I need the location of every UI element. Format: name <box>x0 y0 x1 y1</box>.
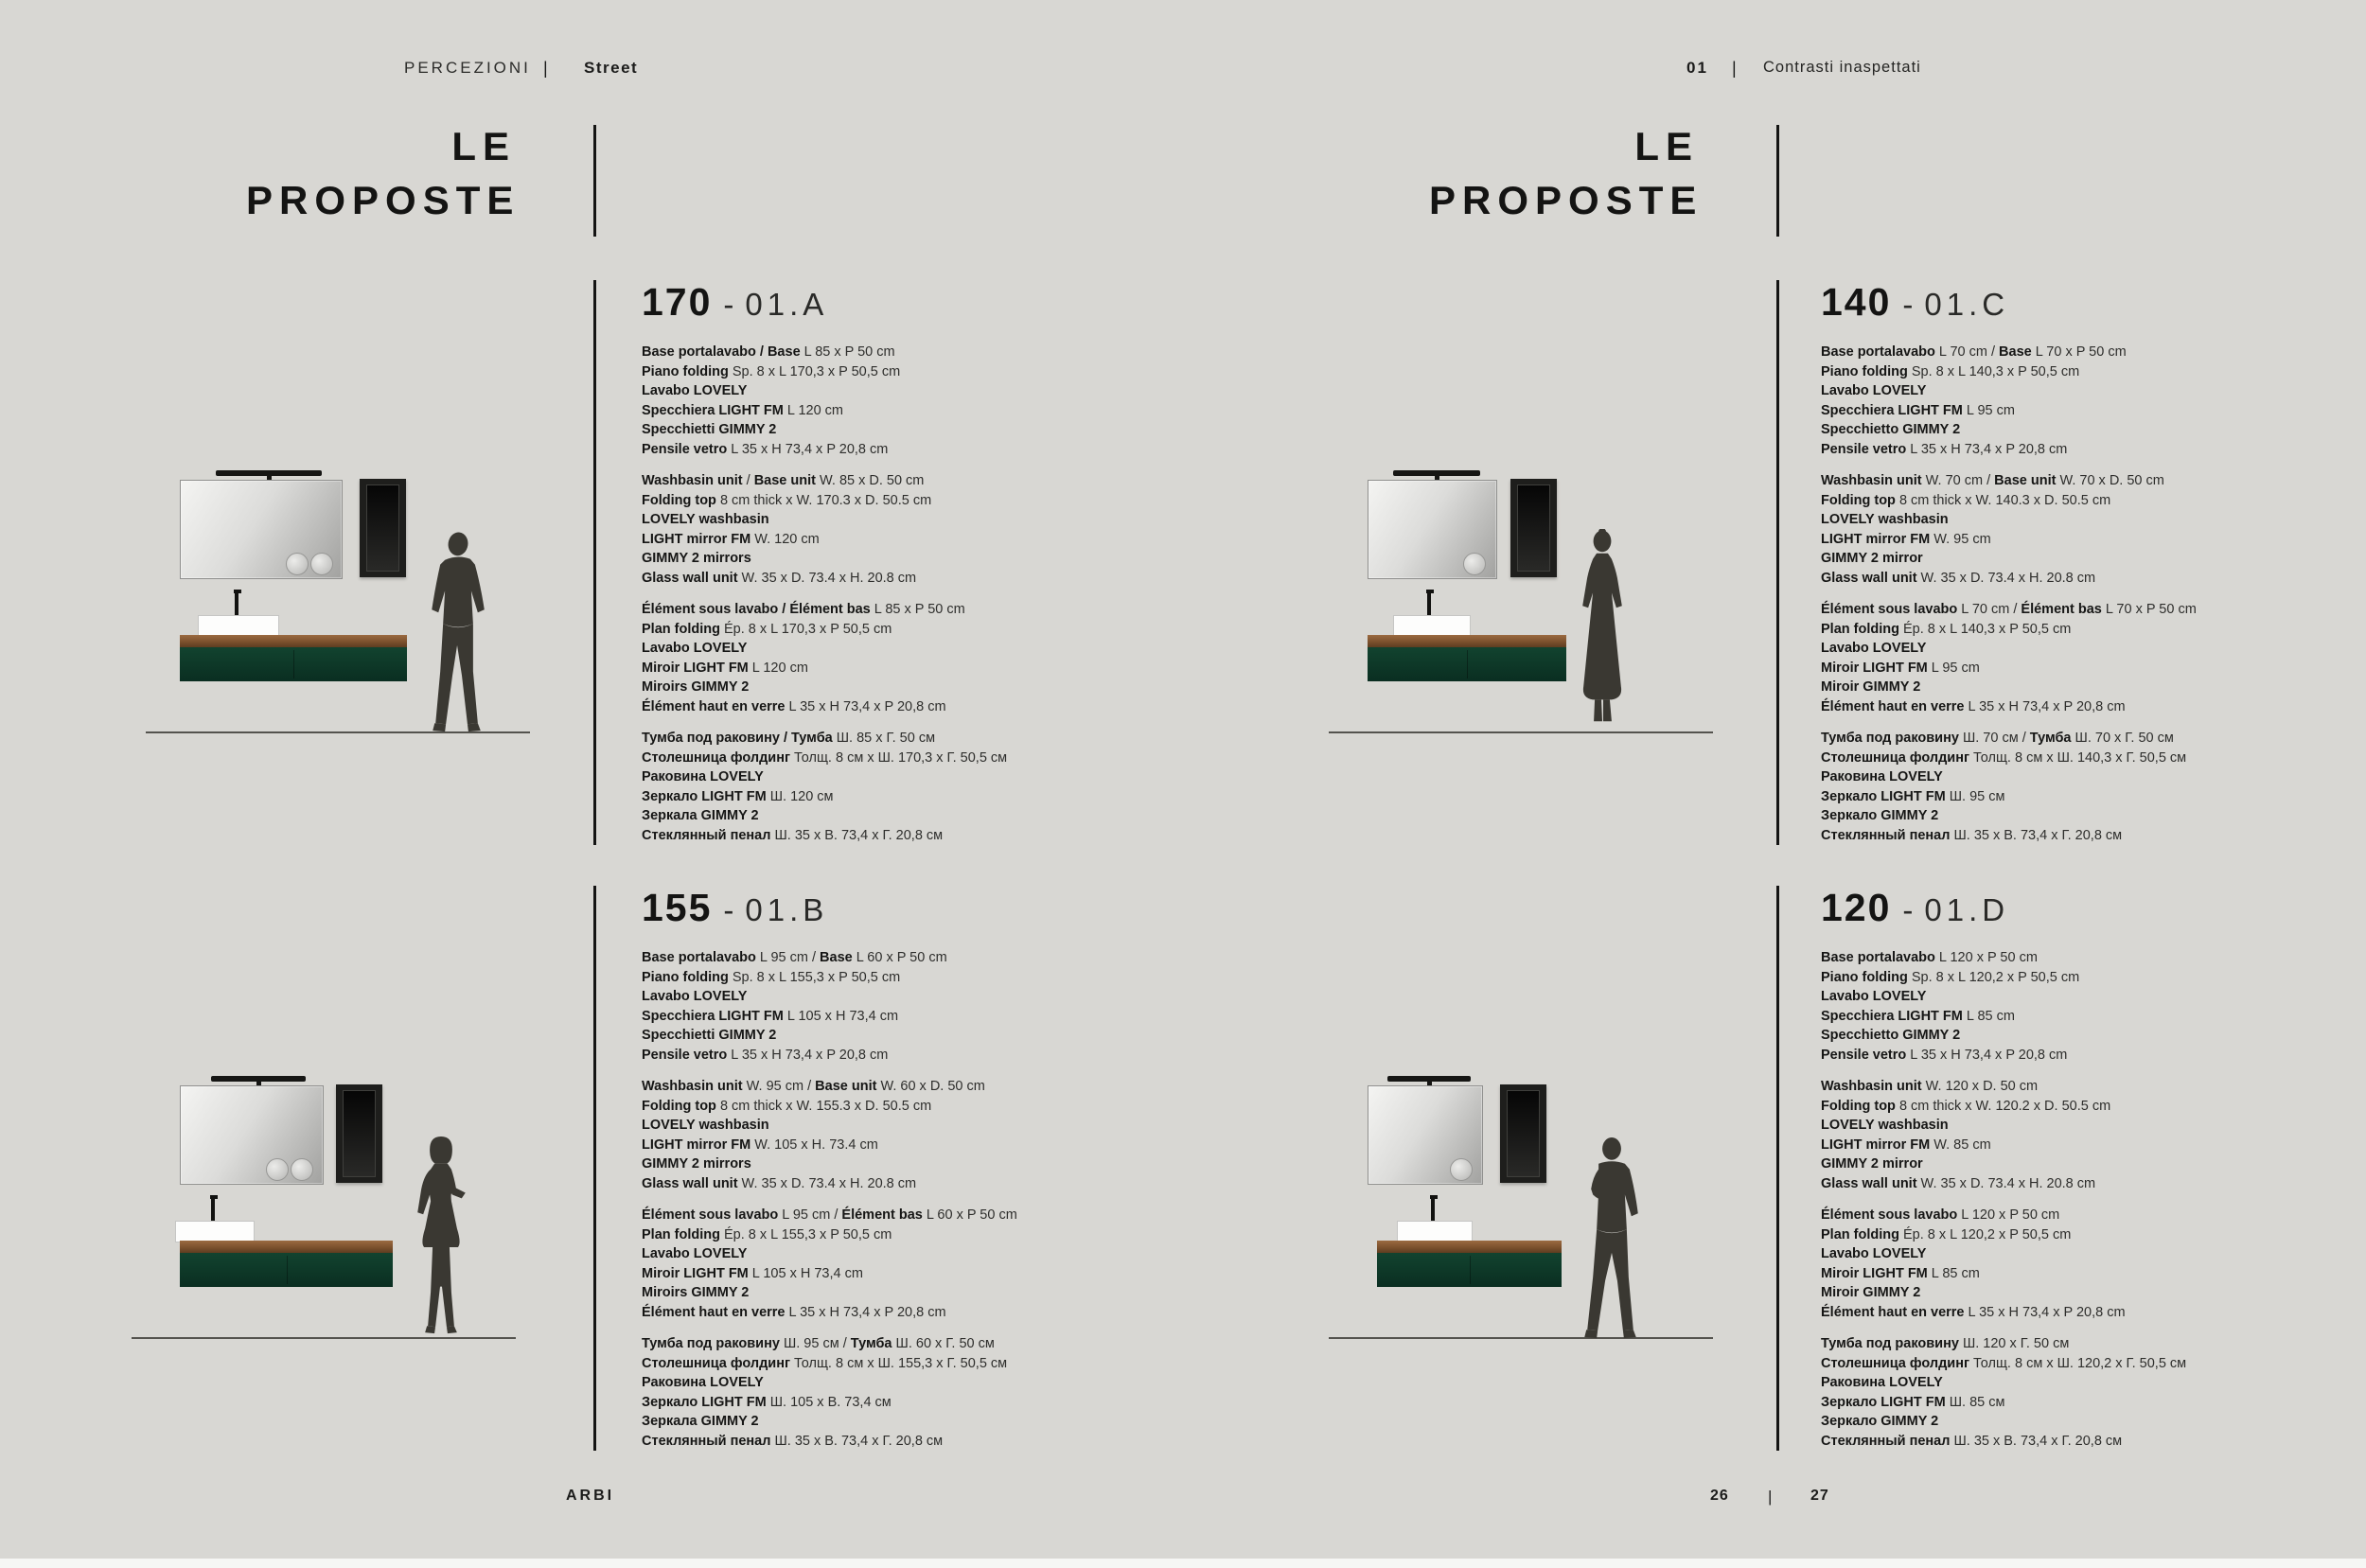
spec-term: Specchiera LIGHT FM <box>1821 1009 1963 1024</box>
spec-line: Стеклянный пенал Ш. 35 x В. 73,4 x Г. 20… <box>1821 1432 2294 1452</box>
spec-line: Specchietti GIMMY 2 <box>642 420 1115 440</box>
spec-term: Зеркало GIMMY 2 <box>1821 808 1938 823</box>
spec-line: Lavabo LOVELY <box>642 639 1115 659</box>
series-name: Street <box>584 59 638 78</box>
gimmy-round-mirror <box>266 1158 289 1181</box>
spec-term: GIMMY 2 mirrors <box>642 1156 751 1172</box>
section-divider <box>1776 886 1779 1451</box>
spec-value: W. 60 x D. 50 cm <box>876 1079 984 1094</box>
spec-line: LOVELY washbasin <box>1821 1116 2294 1136</box>
spec-line: Столешница фолдинг Толщ. 8 см x Ш. 170,3… <box>642 749 1115 768</box>
spec-term: Base portalavabo <box>1821 344 1935 360</box>
spec-value: Ш. 85 см <box>1946 1395 2005 1410</box>
spec-line: Зеркало LIGHT FM Ш. 95 см <box>1821 787 2294 807</box>
spec-line: GIMMY 2 mirror <box>1821 549 2294 569</box>
spec-value: L 120 x P 50 cm <box>1935 950 2038 965</box>
spec-value: L 120 cm <box>749 661 808 676</box>
spec-term: Specchiera LIGHT FM <box>642 403 784 418</box>
spec-line: Miroir GIMMY 2 <box>1821 678 2294 697</box>
section-title-155-01b: 155 - 01.B <box>642 886 828 930</box>
spec-line: Folding top 8 cm thick x W. 170.3 x D. 5… <box>642 491 1115 511</box>
spec-value: 8 cm thick x W. 155.3 x D. 50.5 cm <box>716 1099 931 1114</box>
spec-term: Lavabo LOVELY <box>1821 383 1926 398</box>
spec-line: Piano folding Sp. 8 x L 120,2 x P 50,5 c… <box>1821 968 2294 988</box>
washbasin <box>175 1221 255 1242</box>
spec-term: Столешница фолдинг <box>1821 750 1969 766</box>
washbasin <box>1393 615 1471 637</box>
spec-term: Piano folding <box>1821 970 1908 985</box>
spec-language-block: Élément sous lavabo L 95 cm / Élément ba… <box>642 1206 1115 1322</box>
spec-line: Base portalavabo / Base L 85 x P 50 cm <box>642 343 1115 362</box>
spec-term: Lavabo LOVELY <box>1821 1246 1926 1261</box>
spec-line: Glass wall unit W. 35 x D. 73.4 x H. 20.… <box>642 1174 1115 1194</box>
spec-line: LOVELY washbasin <box>642 510 1115 530</box>
spec-term: Miroirs GIMMY 2 <box>642 1285 749 1300</box>
spec-term: Folding top <box>1821 493 1896 508</box>
spec-value: W. 35 x D. 73.4 x H. 20.8 cm <box>1917 1176 2096 1191</box>
spec-term: Тумба <box>2030 731 2072 746</box>
spec-term: Plan folding <box>642 622 720 637</box>
spec-term: Стеклянный пенал <box>1821 828 1950 843</box>
spec-value: Ép. 8 x L 155,3 x P 50,5 cm <box>720 1227 892 1242</box>
spec-line: Élément sous lavabo L 120 x P 50 cm <box>1821 1206 2294 1225</box>
spec-value: Ш. 120 см <box>767 789 834 804</box>
spec-value: Ш. 95 см <box>1946 789 2005 804</box>
spec-value: L 95 cm <box>1928 661 1980 676</box>
spec-term: Base portalavabo <box>642 950 756 965</box>
spec-value: Ш. 120 x Г. 50 см <box>1959 1336 2069 1351</box>
spec-term: Base <box>1999 344 2032 360</box>
spec-term: Miroir GIMMY 2 <box>1821 679 1920 695</box>
spec-line: Washbasin unit W. 70 cm / Base unit W. 7… <box>1821 471 2294 491</box>
folding-top <box>180 1241 393 1253</box>
spec-line: Pensile vetro L 35 x H 73,4 x P 20,8 cm <box>642 1046 1115 1066</box>
spec-line: Тумба под раковину Ш. 70 см / Тумба Ш. 7… <box>1821 729 2294 749</box>
header-separator: | <box>543 59 548 79</box>
spec-term: Base unit <box>815 1079 876 1094</box>
collection-name: PERCEZIONI <box>404 59 531 78</box>
spec-language-block: Base portalavabo L 120 x P 50 cmPiano fo… <box>1821 948 2294 1065</box>
folding-top <box>180 635 407 647</box>
spec-term: Раковина LOVELY <box>1821 1375 1943 1390</box>
spec-value: W. 35 x D. 73.4 x H. 20.8 cm <box>738 571 917 586</box>
section-size: 140 <box>1821 280 1891 325</box>
glass-wall-unit-door <box>1507 1090 1540 1177</box>
catalog-spread: PERCEZIONI | Street 01 | Contrasti inasp… <box>0 0 2366 1568</box>
spec-line: Base portalavabo L 95 cm / Base L 60 x P… <box>642 948 1115 968</box>
spec-line: Pensile vetro L 35 x H 73,4 x P 20,8 cm <box>1821 440 2294 460</box>
spec-value: L 95 cm <box>1963 403 2015 418</box>
spec-value: L 105 x H 73,4 cm <box>749 1266 863 1281</box>
spec-language-block: Base portalavabo L 95 cm / Base L 60 x P… <box>642 948 1115 1065</box>
spec-term: Base unit <box>754 473 816 488</box>
spec-term: Зеркало LIGHT FM <box>1821 1395 1946 1410</box>
section-divider <box>593 280 596 845</box>
gimmy-round-mirror <box>310 553 333 575</box>
spec-line: Washbasin unit W. 95 cm / Base unit W. 6… <box>642 1077 1115 1097</box>
spec-value: W. 35 x D. 73.4 x H. 20.8 cm <box>1917 571 2096 586</box>
spec-term: Glass wall unit <box>642 1176 738 1191</box>
spec-line: Pensile vetro L 35 x H 73,4 x P 20,8 cm <box>1821 1046 2294 1066</box>
spec-language-block: Washbasin unit W. 95 cm / Base unit W. 6… <box>642 1077 1115 1193</box>
title-line: LE <box>1429 119 1699 173</box>
spec-value: Ép. 8 x L 170,3 x P 50,5 cm <box>720 622 892 637</box>
spec-value: W. 120 x D. 50 cm <box>1922 1079 2039 1094</box>
spec-line: Élément sous lavabo / Élément bas L 85 x… <box>642 600 1115 620</box>
spec-term: Зеркала GIMMY 2 <box>642 808 759 823</box>
spec-term: Specchietto GIMMY 2 <box>1821 1028 1960 1043</box>
spec-term: Раковина LOVELY <box>642 1375 764 1390</box>
spec-line: Élément sous lavabo L 95 cm / Élément ba… <box>642 1206 1115 1225</box>
spec-line: Зеркало GIMMY 2 <box>1821 806 2294 826</box>
chapter-title: Contrasti inaspettati <box>1763 59 1921 77</box>
spec-term: Miroir LIGHT FM <box>642 661 749 676</box>
spec-term: Folding top <box>1821 1099 1896 1114</box>
spec-term: Miroir LIGHT FM <box>1821 661 1928 676</box>
section-size: 120 <box>1821 886 1891 930</box>
spec-line: Pensile vetro L 35 x H 73,4 x P 20,8 cm <box>642 440 1115 460</box>
spec-value: L 35 x H 73,4 x P 20,8 cm <box>786 1305 946 1320</box>
spec-line: Élément haut en verre L 35 x H 73,4 x P … <box>1821 1303 2294 1323</box>
spec-value: Ш. 35 x В. 73,4 x Г. 20,8 см <box>770 1434 943 1449</box>
glass-wall-unit <box>360 479 406 577</box>
section-divider <box>593 886 596 1451</box>
spec-term: Élément sous lavabo <box>1821 602 1957 617</box>
spec-value: W. 85 cm <box>1930 1137 1990 1153</box>
spec-term: Élément bas <box>2021 602 2101 617</box>
spec-language-block: Washbasin unit / Base unit W. 85 x D. 50… <box>642 471 1115 588</box>
glass-wall-unit-door <box>1517 484 1550 572</box>
product-illustration-140 <box>1325 454 1713 757</box>
washbasin <box>1397 1221 1473 1242</box>
spec-value: L 35 x H 73,4 x P 20,8 cm <box>727 1048 888 1063</box>
section-dash: - <box>723 892 733 928</box>
spec-line: Élément sous lavabo L 70 cm / Élément ba… <box>1821 600 2294 620</box>
washbasin <box>198 615 279 637</box>
spec-line: LIGHT mirror FM W. 95 cm <box>1821 530 2294 550</box>
spec-term: Élément haut en verre <box>1821 699 1965 714</box>
spec-value: L 85 x P 50 cm <box>871 602 965 617</box>
spec-language-block: Washbasin unit W. 70 cm / Base unit W. 7… <box>1821 471 2294 588</box>
spec-language-block: Тумба под раковину Ш. 95 см / Тумба Ш. 6… <box>642 1334 1115 1451</box>
spec-line: Piano folding Sp. 8 x L 140,3 x P 50,5 c… <box>1821 362 2294 382</box>
section-dash: - <box>723 287 733 323</box>
spec-term: Specchietti GIMMY 2 <box>642 422 776 437</box>
spec-value: L 70 x P 50 cm <box>2102 602 2197 617</box>
spec-line: Specchiera LIGHT FM L 85 cm <box>1821 1007 2294 1027</box>
spec-language-block: Élément sous lavabo L 70 cm / Élément ba… <box>1821 600 2294 716</box>
spec-line: Élément haut en verre L 35 x H 73,4 x P … <box>642 697 1115 717</box>
chapter-number: 01 <box>1686 59 1708 78</box>
spec-line: Plan folding Ép. 8 x L 170,3 x P 50,5 cm <box>642 620 1115 640</box>
spec-value: L 70 cm / <box>1935 344 1999 360</box>
spec-line: Folding top 8 cm thick x W. 120.2 x D. 5… <box>1821 1097 2294 1117</box>
spec-term: Piano folding <box>642 970 729 985</box>
gimmy-round-mirror <box>1450 1158 1473 1181</box>
spec-value: L 70 x P 50 cm <box>2032 344 2127 360</box>
spec-line: Specchiera LIGHT FM L 120 cm <box>642 401 1115 421</box>
base-unit <box>1368 647 1566 681</box>
spec-line: Miroirs GIMMY 2 <box>642 1283 1115 1303</box>
spec-language-block: Тумба под раковину Ш. 120 x Г. 50 смСтол… <box>1821 1334 2294 1451</box>
spec-language-block: Élément sous lavabo L 120 x P 50 cmPlan … <box>1821 1206 2294 1322</box>
spec-value: 8 cm thick x W. 170.3 x D. 50.5 cm <box>716 493 931 508</box>
spec-term: Élément haut en verre <box>642 699 786 714</box>
faucet-icon <box>211 1199 215 1222</box>
spec-language-block: Washbasin unit W. 120 x D. 50 cmFolding … <box>1821 1077 2294 1193</box>
spec-term: Lavabo LOVELY <box>1821 989 1926 1004</box>
page-title-left: LE PROPOSTE <box>246 119 516 227</box>
spec-line: Miroir LIGHT FM L 120 cm <box>642 659 1115 678</box>
glass-wall-unit-door <box>366 484 399 572</box>
spec-line: Lavabo LOVELY <box>642 381 1115 401</box>
section-size: 170 <box>642 280 712 325</box>
spec-term: Столешница фолдинг <box>1821 1356 1969 1371</box>
spec-line: Folding top 8 cm thick x W. 140.3 x D. 5… <box>1821 491 2294 511</box>
base-unit <box>1377 1253 1562 1287</box>
product-illustration-155 <box>128 1060 516 1363</box>
spec-line: Столешница фолдинг Толщ. 8 см x Ш. 120,2… <box>1821 1354 2294 1374</box>
glass-wall-unit <box>1500 1084 1546 1183</box>
floor-line <box>1329 731 1713 733</box>
spec-term: Стеклянный пенал <box>642 828 770 843</box>
spec-line: Miroir LIGHT FM L 85 cm <box>1821 1264 2294 1284</box>
spec-term: Plan folding <box>1821 1227 1899 1242</box>
spec-term: Miroir GIMMY 2 <box>1821 1285 1920 1300</box>
spec-term: Зеркало LIGHT FM <box>642 1395 767 1410</box>
spec-line: Столешница фолдинг Толщ. 8 см x Ш. 140,3… <box>1821 749 2294 768</box>
spec-value: Ép. 8 x L 140,3 x P 50,5 cm <box>1899 622 2071 637</box>
spec-line: Miroirs GIMMY 2 <box>642 678 1115 697</box>
spec-term: Glass wall unit <box>1821 1176 1917 1191</box>
spec-line: LOVELY washbasin <box>1821 510 2294 530</box>
spec-value: Ш. 35 x В. 73,4 x Г. 20,8 см <box>1950 1434 2122 1449</box>
spec-term: Столешница фолдинг <box>642 1356 790 1371</box>
spec-line: Plan folding Ép. 8 x L 120,2 x P 50,5 cm <box>1821 1225 2294 1245</box>
faucet-icon <box>235 593 238 616</box>
spec-list: Base portalavabo L 120 x P 50 cmPiano fo… <box>1821 948 2294 1463</box>
spec-term: Washbasin unit <box>1821 473 1922 488</box>
spec-term: Élément sous lavabo <box>642 1207 778 1223</box>
spec-term: Washbasin unit <box>1821 1079 1922 1094</box>
spec-term: Miroirs GIMMY 2 <box>642 679 749 695</box>
spec-value: Ép. 8 x L 120,2 x P 50,5 cm <box>1899 1227 2071 1242</box>
title-line: LE <box>246 119 516 173</box>
spec-term: Base unit <box>1994 473 2056 488</box>
spec-list: Base portalavabo L 70 cm / Base L 70 x P… <box>1821 343 2294 857</box>
spec-line: GIMMY 2 mirrors <box>642 1154 1115 1174</box>
spec-value: Sp. 8 x L 170,3 x P 50,5 cm <box>729 364 900 379</box>
spec-value: L 105 x H 73,4 cm <box>784 1009 898 1024</box>
spec-term: Зеркала GIMMY 2 <box>642 1414 759 1429</box>
spec-term: Specchiera LIGHT FM <box>642 1009 784 1024</box>
spec-line: Зеркало LIGHT FM Ш. 120 см <box>642 787 1115 807</box>
spec-line: Столешница фолдинг Толщ. 8 см x Ш. 155,3… <box>642 1354 1115 1374</box>
spec-term: Élément bas <box>841 1207 922 1223</box>
spec-line: Lavabo LOVELY <box>642 987 1115 1007</box>
spec-value: Ш. 70 x Г. 50 см <box>2072 731 2174 746</box>
spec-value: Ш. 70 см / <box>1959 731 2030 746</box>
spec-line: Base portalavabo L 70 cm / Base L 70 x P… <box>1821 343 2294 362</box>
spec-term: LIGHT mirror FM <box>642 532 750 547</box>
spec-value: L 35 x H 73,4 x P 20,8 cm <box>1965 1305 2126 1320</box>
spec-value: 8 cm thick x W. 120.2 x D. 50.5 cm <box>1896 1099 2110 1114</box>
spec-line: LIGHT mirror FM W. 105 x H. 73.4 cm <box>642 1136 1115 1155</box>
spec-line: Washbasin unit W. 120 x D. 50 cm <box>1821 1077 2294 1097</box>
spec-line: Lavabo LOVELY <box>1821 381 2294 401</box>
spec-line: GIMMY 2 mirror <box>1821 1154 2294 1174</box>
spec-line: Тумба под раковину / Тумба Ш. 85 x Г. 50… <box>642 729 1115 749</box>
page-number-left: 26 <box>1710 1488 1729 1505</box>
spec-language-block: Base portalavabo L 70 cm / Base L 70 x P… <box>1821 343 2294 459</box>
spec-value: W. 95 cm <box>1930 532 1990 547</box>
base-unit <box>180 1253 393 1287</box>
spec-term: LOVELY washbasin <box>1821 1118 1949 1133</box>
spec-line: Specchietti GIMMY 2 <box>642 1026 1115 1046</box>
spec-value: W. 95 cm / <box>743 1079 816 1094</box>
section-dash: - <box>1902 892 1913 928</box>
spec-term: Folding top <box>642 1099 716 1114</box>
spec-term: Base portalavabo <box>1821 950 1935 965</box>
spec-value: L 35 x H 73,4 x P 20,8 cm <box>1906 442 2067 457</box>
spec-value: / <box>743 473 754 488</box>
spec-line: GIMMY 2 mirrors <box>642 549 1115 569</box>
product-illustration-170 <box>142 454 530 757</box>
spec-line: Зеркала GIMMY 2 <box>642 806 1115 826</box>
spec-term: Lavabo LOVELY <box>642 1246 747 1261</box>
section-code: 01.C <box>1924 287 2009 323</box>
spec-term: Тумба под раковину / Тумба <box>642 731 833 746</box>
spec-term: Тумба <box>851 1336 892 1351</box>
spec-line: Specchiera LIGHT FM L 105 x H 73,4 cm <box>642 1007 1115 1027</box>
spec-value: Ш. 95 см / <box>780 1336 851 1351</box>
spec-term: Pensile vetro <box>642 1048 727 1063</box>
title-divider <box>1776 125 1779 237</box>
spec-value: L 120 cm <box>784 403 843 418</box>
spec-value: L 95 cm / <box>778 1207 841 1223</box>
product-illustration-120 <box>1325 1060 1713 1363</box>
spec-term: Specchiera LIGHT FM <box>1821 403 1963 418</box>
spec-term: Plan folding <box>642 1227 720 1242</box>
spec-term: LOVELY washbasin <box>1821 512 1949 527</box>
spec-term: Тумба под раковину <box>1821 731 1959 746</box>
spec-line: Glass wall unit W. 35 x D. 73.4 x H. 20.… <box>1821 1174 2294 1194</box>
spec-value: L 60 x P 50 cm <box>923 1207 1017 1223</box>
spec-value: W. 70 cm / <box>1922 473 1995 488</box>
title-divider <box>593 125 596 237</box>
spec-term: Зеркало LIGHT FM <box>1821 789 1946 804</box>
page-bottom-edge <box>0 1559 2366 1568</box>
page-number-right: 27 <box>1810 1488 1829 1505</box>
spec-term: Lavabo LOVELY <box>642 989 747 1004</box>
spec-term: LIGHT mirror FM <box>642 1137 750 1153</box>
spec-term: GIMMY 2 mirror <box>1821 1156 1923 1172</box>
spec-line: Plan folding Ép. 8 x L 155,3 x P 50,5 cm <box>642 1225 1115 1245</box>
header-separator: | <box>1732 59 1737 79</box>
spec-language-block: Тумба под раковину / Тумба Ш. 85 x Г. 50… <box>642 729 1115 845</box>
spec-term: Piano folding <box>1821 364 1908 379</box>
spec-term: Тумба под раковину <box>642 1336 780 1351</box>
spec-term: Зеркало GIMMY 2 <box>1821 1414 1938 1429</box>
spec-term: Зеркало LIGHT FM <box>642 789 767 804</box>
spec-term: Столешница фолдинг <box>642 750 790 766</box>
spec-line: Стеклянный пенал Ш. 35 x В. 73,4 x Г. 20… <box>642 826 1115 846</box>
spec-value: Ш. 35 x В. 73,4 x Г. 20,8 см <box>1950 828 2122 843</box>
spec-line: Miroir LIGHT FM L 95 cm <box>1821 659 2294 678</box>
spec-line: Specchietto GIMMY 2 <box>1821 1026 2294 1046</box>
spec-value: W. 35 x D. 73.4 x H. 20.8 cm <box>738 1176 917 1191</box>
spec-line: Folding top 8 cm thick x W. 155.3 x D. 5… <box>642 1097 1115 1117</box>
spec-line: Зеркала GIMMY 2 <box>642 1412 1115 1432</box>
faucet-icon <box>1427 593 1431 616</box>
person-illustration <box>1563 1135 1660 1350</box>
spec-line: Glass wall unit W. 35 x D. 73.4 x H. 20.… <box>642 569 1115 589</box>
spec-language-block: Тумба под раковину Ш. 70 см / Тумба Ш. 7… <box>1821 729 2294 845</box>
spec-term: Élément haut en verre <box>1821 1305 1965 1320</box>
spec-term: Base <box>820 950 853 965</box>
spec-term: GIMMY 2 mirrors <box>642 551 751 566</box>
spec-line: Washbasin unit / Base unit W. 85 x D. 50… <box>642 471 1115 491</box>
spec-line: Стеклянный пенал Ш. 35 x В. 73,4 x Г. 20… <box>1821 826 2294 846</box>
spec-value: W. 70 x D. 50 cm <box>2056 473 2163 488</box>
spec-term: Lavabo LOVELY <box>642 641 747 656</box>
spec-term: Pensile vetro <box>642 442 727 457</box>
spec-line: Piano folding Sp. 8 x L 155,3 x P 50,5 c… <box>642 968 1115 988</box>
spec-value: Ш. 35 x В. 73,4 x Г. 20,8 см <box>770 828 943 843</box>
spec-value: L 85 x P 50 cm <box>801 344 895 360</box>
section-dash: - <box>1902 287 1913 323</box>
spec-term: LIGHT mirror FM <box>1821 1137 1930 1153</box>
spec-line: Lavabo LOVELY <box>642 1244 1115 1264</box>
folding-top <box>1377 1241 1562 1253</box>
spec-term: LOVELY washbasin <box>642 1118 769 1133</box>
spec-term: Base portalavabo / Base <box>642 344 801 360</box>
spec-term: Glass wall unit <box>1821 571 1917 586</box>
glass-wall-unit <box>1510 479 1557 577</box>
gimmy-round-mirror <box>291 1158 313 1181</box>
spec-line: Élément haut en verre L 35 x H 73,4 x P … <box>642 1303 1115 1323</box>
spec-line: Specchietto GIMMY 2 <box>1821 420 2294 440</box>
spec-value: Толщ. 8 см x Ш. 120,2 x Г. 50,5 см <box>1969 1356 2186 1371</box>
spec-value: Ш. 85 x Г. 50 см <box>833 731 935 746</box>
spec-list: Base portalavabo / Base L 85 x P 50 cmPi… <box>642 343 1115 857</box>
spec-term: Стеклянный пенал <box>1821 1434 1950 1449</box>
section-size: 155 <box>642 886 712 930</box>
spec-term: Lavabo LOVELY <box>642 383 747 398</box>
spec-line: LOVELY washbasin <box>642 1116 1115 1136</box>
spec-line: Piano folding Sp. 8 x L 170,3 x P 50,5 c… <box>642 362 1115 382</box>
spec-term: Стеклянный пенал <box>642 1434 770 1449</box>
spec-term: Washbasin unit <box>642 1079 743 1094</box>
section-code: 01.D <box>1924 892 2009 928</box>
section-code: 01.A <box>745 287 828 323</box>
spec-line: Тумба под раковину Ш. 95 см / Тумба Ш. 6… <box>642 1334 1115 1354</box>
spec-value: Sp. 8 x L 120,2 x P 50,5 cm <box>1908 970 2079 985</box>
spec-value: L 35 x H 73,4 x P 20,8 cm <box>727 442 888 457</box>
spec-value: L 95 cm / <box>756 950 820 965</box>
spec-value: 8 cm thick x W. 140.3 x D. 50.5 cm <box>1896 493 2110 508</box>
spec-term: LIGHT mirror FM <box>1821 532 1930 547</box>
section-code: 01.B <box>745 892 828 928</box>
spec-term: Folding top <box>642 493 716 508</box>
spec-line: Plan folding Ép. 8 x L 140,3 x P 50,5 cm <box>1821 620 2294 640</box>
spec-term: Élément sous lavabo <box>1821 1207 1957 1223</box>
spec-value: L 70 cm / <box>1957 602 2021 617</box>
spec-language-block: Élément sous lavabo / Élément bas L 85 x… <box>642 600 1115 716</box>
spec-value: Толщ. 8 см x Ш. 140,3 x Г. 50,5 см <box>1969 750 2186 766</box>
spec-line: Раковина LOVELY <box>642 767 1115 787</box>
spec-list: Base portalavabo L 95 cm / Base L 60 x P… <box>642 948 1115 1463</box>
